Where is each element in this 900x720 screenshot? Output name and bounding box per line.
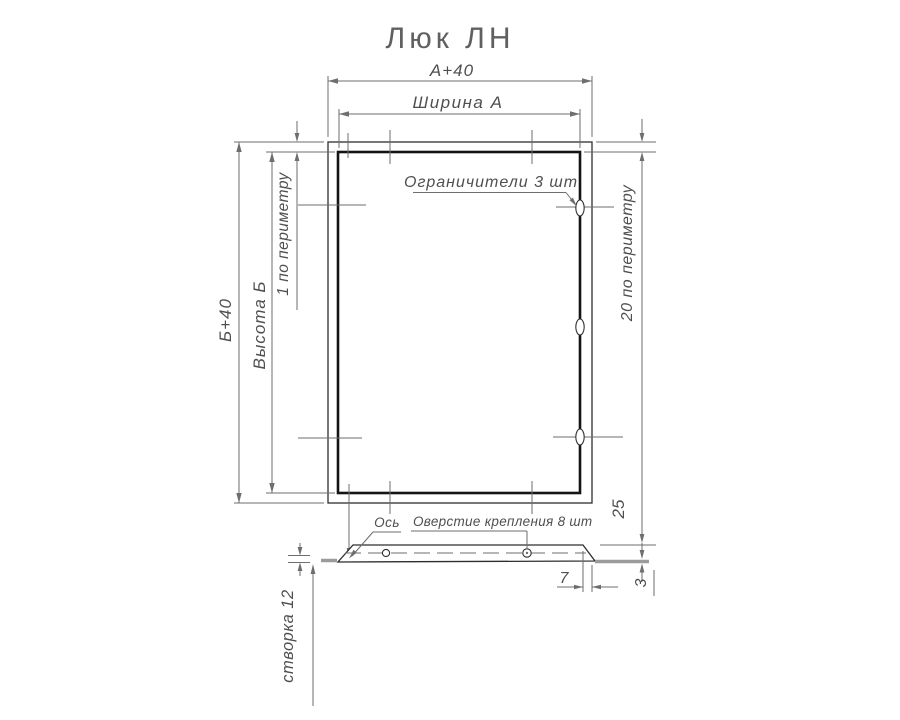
dim-frame-note: 20 по периметру	[584, 119, 656, 534]
dim-flange-label: 3	[633, 578, 650, 587]
hole-2-center-dot	[526, 552, 528, 554]
section-view: Ось Оверстие крепления 8 шт 25 3	[279, 484, 656, 706]
dim-bevel-label: 7	[560, 570, 570, 587]
dim-gap-note: 1 по периметру	[275, 121, 299, 310]
dim-outer-width-label: А+40	[429, 61, 474, 80]
left-thickness-marks	[288, 543, 310, 576]
limiters-label: Ограничители 3 шт	[404, 174, 578, 191]
dim-drop-label: 25	[609, 499, 628, 519]
limiters-callout: Ограничители 3 шт	[404, 174, 578, 207]
leaf-label: створка 12	[279, 589, 297, 683]
dim-inner-width: Ширина А	[339, 93, 580, 148]
dim-drop-25: 25	[600, 499, 656, 545]
hole-1	[382, 549, 389, 556]
gap-note-label: 1 по периметру	[275, 172, 292, 296]
mount-holes-callout: Оверстие крепления 8 шт	[411, 514, 592, 549]
dim-inner-height: Высота Б	[250, 152, 335, 493]
dim-flange-3: 3	[633, 543, 654, 596]
hatch-drawing: Люк ЛН Ограничители 3 шт	[0, 0, 900, 720]
limiter-2	[576, 319, 584, 335]
frame-outer-rect	[328, 142, 592, 503]
mount-holes-label: Оверстие крепления 8 шт	[413, 514, 592, 529]
frame-note-label: 20 по периметру	[619, 184, 636, 322]
frame-inner-rect	[338, 152, 580, 493]
limiter-3	[576, 429, 584, 445]
dim-inner-width-label: Ширина А	[413, 93, 504, 112]
leaf-callout: створка 12	[279, 564, 315, 706]
dim-outer-height: Б+40	[216, 142, 324, 503]
page-title: Люк ЛН	[386, 22, 515, 55]
dim-outer-height-label: Б+40	[216, 298, 235, 342]
drawing-canvas: Люк ЛН Ограничители 3 шт	[0, 0, 900, 720]
front-view: Ограничители 3 шт А+40 Ширина А	[216, 61, 656, 534]
axis-label: Ось	[374, 515, 400, 530]
limiter-1	[576, 200, 584, 216]
dim-inner-height-label: Высота Б	[250, 280, 269, 369]
